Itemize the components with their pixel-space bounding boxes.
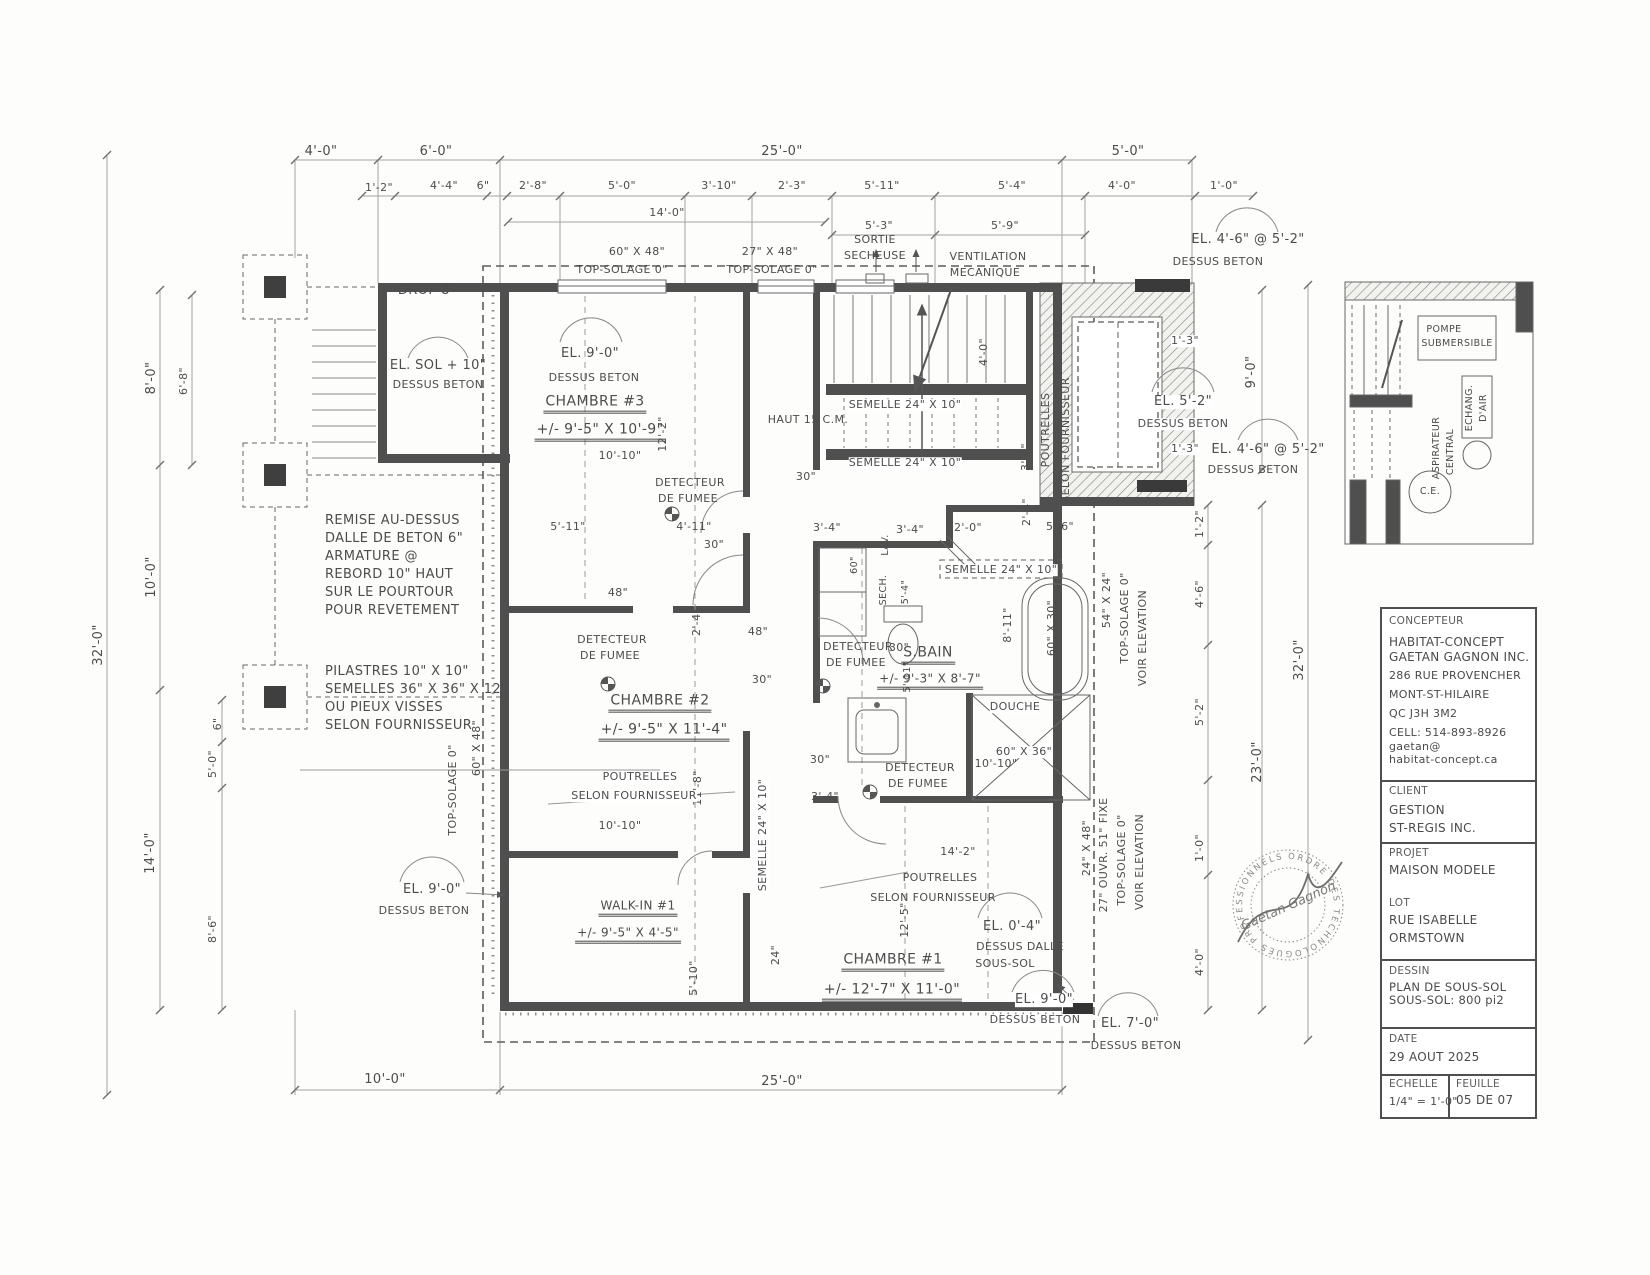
elevation-note: EL. 4'-6" @ 5'-2" [1191, 233, 1304, 247]
concepteur-line: GAETAN GAGNON INC. [1389, 650, 1529, 664]
concepteur-line: habitat-concept.ca [1389, 753, 1498, 766]
dimension: 2'-8" [519, 180, 547, 192]
exterior-stair [312, 330, 376, 458]
divider [1382, 842, 1535, 844]
dimension: 24" [770, 945, 782, 965]
elevation-note: EL. 9'-0" [561, 347, 619, 361]
dimension: 5'-11" [550, 521, 585, 533]
dimension: 3'-4" [811, 791, 839, 803]
air-exchanger-label: ECHANG. [1465, 385, 1475, 432]
elevation-note: DESSUS BETON [1091, 1040, 1182, 1052]
joist-note: SELON FOURNISSEUR [870, 892, 996, 904]
dimension: 2'-4" [1021, 498, 1033, 526]
window-size-note: 60" X 48" [609, 246, 665, 258]
ventilation-note: MECANIQUE [950, 267, 1020, 279]
dimension: 25'-0" [761, 145, 802, 159]
dimension: 5'-10" [688, 960, 700, 995]
stair-note: HAUT 15 C.M. [768, 414, 849, 426]
dimension: 4'-4" [430, 180, 458, 192]
dimension: 14'-2" [940, 846, 975, 858]
fixture-label: LAV. [881, 534, 891, 555]
elevation-note: DESSUS BETON [1208, 464, 1299, 476]
dimension: 30" [796, 471, 816, 483]
window-bar [1135, 279, 1190, 292]
concepteur-line: MONT-ST-HILAIRE [1389, 688, 1489, 701]
dimension: 8'-6" [207, 915, 219, 943]
elevation-note: EL. 7'-0" [1101, 1017, 1159, 1031]
dimension: 1'-3" [1171, 443, 1199, 455]
toilet-tank [884, 606, 922, 622]
remise-note: DALLE DE BETON 6" [325, 532, 463, 546]
fixture-label: DOUCHE [990, 701, 1040, 713]
dimension: 8'-11" [1002, 607, 1014, 642]
smoke-detector-note: DE FUMEE [580, 650, 640, 662]
central-vacuum-label: CENTRAL [1446, 429, 1456, 475]
smoke-detector-note: DETECTEUR [655, 477, 725, 489]
elevation-note: DESSUS BETON [379, 905, 470, 917]
dimension: 10'-0" [364, 1073, 405, 1087]
drop-note: DROP 8" [398, 284, 456, 298]
concepteur-line: 286 RUE PROVENCHER [1389, 669, 1521, 682]
dimension: 14'-0" [649, 207, 684, 219]
lot-line: RUE ISABELLE [1389, 913, 1477, 927]
dimension: 3'-4" [813, 522, 841, 534]
divider [1382, 959, 1535, 961]
fixture-size: 60" X 36" [996, 746, 1052, 758]
joist-note: POUTRELLES [903, 872, 978, 884]
dimension: 10'-10" [599, 450, 642, 462]
dimension: 5'-0" [608, 180, 636, 192]
window-size-note: 60" X 48" [471, 720, 483, 776]
dimension: 5'-4" [901, 580, 911, 605]
dimension: 2'-4" [691, 608, 703, 636]
room-name: CHAMBRE #2 [608, 694, 711, 713]
room-name: CHAMBRE #3 [543, 395, 646, 414]
dimension: 5'-3" [865, 220, 893, 232]
remise-note: REBORD 10" HAUT [325, 568, 453, 582]
joist-note: POUTRELLES [1040, 393, 1052, 468]
lot-line: ORMSTOWN [1389, 931, 1465, 945]
dimension: 5'-2" [1194, 698, 1206, 726]
dimension: 10'-10" [975, 758, 1018, 770]
dimension: 12'-2" [657, 416, 669, 451]
dimension: 4'-0" [1108, 180, 1136, 192]
room-size: +/- 9'-5" X 4'-5" [575, 927, 681, 944]
dimension: 32'-0" [1293, 639, 1307, 680]
window-size-note: 27" X 48" [742, 246, 798, 258]
pump-label: SUBMERSIBLE [1421, 339, 1492, 349]
remise-note: ARMATURE @ [325, 550, 418, 564]
smoke-detector-note: DE FUMEE [888, 778, 948, 790]
remise-note: POUR REVETEMENT [325, 604, 459, 618]
top-solage-note: TOP-SOLAGE 0" [1119, 572, 1131, 663]
dimension: 1'-0" [1210, 180, 1238, 192]
title-block: CONCEPTEUR HABITAT-CONCEPT GAETAN GAGNON… [1380, 607, 1537, 1119]
dimension: 10'-10" [599, 820, 642, 832]
smoke-detector-note: DE FUMEE [658, 493, 718, 505]
fixture-size: 60" X 30" [1046, 600, 1058, 656]
concepteur-line: gaetan@ [1389, 740, 1441, 753]
date-label: DATE [1389, 1033, 1418, 1045]
smoke-detector-note: DETECTEUR [823, 641, 893, 653]
dimension: 12'-5" [899, 902, 911, 937]
client-label: CLIENT [1389, 785, 1428, 797]
water-heater-label: C.E. [1420, 487, 1440, 497]
window-note: 27" OUVR. 51" FIXE [1098, 798, 1110, 913]
joist-note: SELON FOURNISSEUR [571, 790, 697, 802]
feuille-label: FEUILLE [1456, 1078, 1500, 1090]
dimension: 5'-0" [207, 750, 219, 778]
room-name: WALK-IN #1 [598, 900, 677, 917]
dimension: 60" [850, 556, 860, 574]
divider [1382, 1074, 1535, 1076]
concepteur-line: HABITAT-CONCEPT [1389, 635, 1504, 649]
dimension: 48" [608, 587, 628, 599]
pump-detail-plan [1345, 282, 1533, 544]
smoke-detector-note: DE FUMEE [826, 657, 886, 669]
semelle-note: SEMELLE 24" X 10" [849, 399, 962, 411]
pilastres-note: OU PIEUX VISSES [325, 701, 443, 715]
projet-value: MAISON MODELE [1389, 863, 1496, 877]
dimension: 1'-2" [1194, 510, 1206, 538]
dryer-exit-note: SECHEUSE [844, 250, 906, 262]
room-name: CHAMBRE #1 [841, 953, 944, 972]
dimension: 9'-0" [1245, 356, 1259, 389]
dimension: 3'-6" [1020, 443, 1032, 471]
dimension: 30" [810, 754, 830, 766]
professional-stamp: ORDRE DES TECHNOLOGUES PROFESSIONNELS Ga… [1233, 850, 1343, 960]
pilastres-note: SELON FOURNISSEUR [325, 719, 472, 733]
elevation-note: EL. 0'-4" [983, 920, 1041, 934]
air-exchanger-label: D'AIR [1479, 394, 1489, 422]
central-vacuum [1463, 441, 1491, 469]
elevation-note: EL. 9'-0" [1015, 993, 1073, 1007]
dimension: 30" [889, 642, 909, 654]
client-line: ST-REGIS INC. [1389, 821, 1476, 835]
dimension: 5'-0" [1112, 145, 1145, 159]
semelle-note: SEMELLE 24" X 10" [945, 564, 1058, 576]
room-size: +/- 9'-3" X 8'-7" [877, 673, 983, 690]
elevation-note: DESSUS BETON [990, 1014, 1081, 1026]
elevation-note: DESSUS DALLE [976, 941, 1064, 953]
dimension: 2'-3" [778, 180, 806, 192]
window-size-note: 54" X 24" [1101, 572, 1113, 628]
floor-plan-sheet: ORDRE DES TECHNOLOGUES PROFESSIONNELS Ga… [0, 0, 1650, 1275]
elevation-note: EL. 9'-0" [403, 883, 461, 897]
stair [834, 287, 1005, 455]
pilastres-note: SEMELLES 36" X 36" X 12" [325, 683, 508, 697]
concepteur-line: CELL: 514-893-8926 [1389, 726, 1506, 739]
dessin-line: PLAN DE SOUS-SOL [1389, 980, 1506, 994]
elevation-note: SOUS-SOL [975, 958, 1035, 970]
dimension: 5'-11" [903, 662, 913, 693]
elevation-note: DESSUS BETON [393, 379, 484, 391]
elevation-note: EL. SOL + 10" [390, 359, 486, 373]
dimension: 2'-0" [954, 522, 982, 534]
dimension: 6" [477, 180, 490, 192]
pilastres-note: PILASTRES 10" X 10" [325, 665, 469, 679]
divider [1382, 1027, 1535, 1029]
dimension: 48" [748, 626, 768, 638]
dimension: 3'-4" [896, 524, 924, 536]
joist-note: SELON FOURNISSEUR [1060, 377, 1072, 503]
window-bar [1137, 480, 1187, 492]
dimension: 3'-10" [701, 180, 736, 192]
dimension: 5'-4" [998, 180, 1026, 192]
semelle-note: SEMELLE 24" X 10" [849, 457, 962, 469]
dimension: 8'-0" [145, 362, 159, 395]
elevation-note: DESSUS BETON [1173, 256, 1264, 268]
voir-elevation-note: VOIR ELEVATION [1134, 814, 1146, 910]
echelle-value: 1/4" = 1'-0" [1389, 1095, 1458, 1108]
room-size: +/- 9'-5" X 11'-4" [599, 723, 730, 742]
smoke-detector-note: DETECTEUR [885, 762, 955, 774]
top-solage-note: TOP-SOLAGE 0" [726, 264, 817, 276]
dimension: 30" [752, 674, 772, 686]
dimension: 4'-0" [305, 145, 338, 159]
elevation-note: EL. 4'-6" @ 5'-2" [1211, 443, 1324, 457]
stamp-signature: Gaetan Gagnon [1239, 879, 1338, 934]
dimension: 6" [212, 718, 224, 731]
date-value: 29 AOUT 2025 [1389, 1050, 1480, 1064]
concepteur-label: CONCEPTEUR [1389, 615, 1464, 627]
top-solage-note: TOP-SOLAGE 0" [576, 264, 667, 276]
concepteur-line: QC J3H 3M2 [1389, 707, 1457, 720]
dimension: 14'-0" [144, 832, 158, 873]
dimension: 25'-0" [761, 1075, 802, 1089]
dessin-line: SOUS-SOL: 800 pi2 [1389, 993, 1504, 1007]
echelle-label: ECHELLE [1389, 1078, 1438, 1090]
window-size-note: 24" X 48" [1081, 820, 1093, 876]
feuille-value: 05 DE 07 [1456, 1093, 1513, 1107]
remise-note: REMISE AU-DESSUS [325, 514, 460, 528]
dessin-label: DESSIN [1389, 965, 1430, 977]
top-solage-note: TOP-SOLAGE 0" [1116, 814, 1128, 905]
lot-label: LOT [1389, 897, 1410, 909]
dimension: 30" [704, 539, 724, 551]
central-vacuum-label: ASPIRATEUR [1432, 417, 1442, 479]
projet-label: PROJET [1389, 847, 1429, 859]
dimension: 4'-0" [978, 338, 990, 366]
dimension: 4'-0" [1194, 948, 1206, 976]
dimension: 6'-8" [178, 367, 190, 395]
dimension: 1'-0" [1194, 834, 1206, 862]
remise-note: SUR LE POURTOUR [325, 586, 454, 600]
dimension: 32'-0" [92, 624, 106, 665]
divider [1382, 780, 1535, 782]
dimension: 4'-6" [1194, 580, 1206, 608]
semelle-note: SEMELLE 24" X 10" [757, 779, 769, 892]
voir-elevation-note: VOIR ELEVATION [1137, 590, 1149, 686]
ventilation-note: VENTILATION [950, 251, 1027, 263]
dryer-exit-note: SORTIE [854, 234, 896, 246]
joist-note: POUTRELLES [603, 771, 678, 783]
dimension: 1'-2" [365, 182, 393, 194]
dimension: 5'-9" [991, 220, 1019, 232]
room-size: +/- 9'-5" X 10'-9" [535, 423, 666, 442]
elevation-note: DESSUS BETON [1138, 418, 1229, 430]
dimension: 5'-11" [864, 180, 899, 192]
elevation-note: EL. 5'-2" [1154, 395, 1212, 409]
client-line: GESTION [1389, 803, 1445, 817]
dimension: 23'-0" [1251, 741, 1265, 782]
dimension: 1'-3" [1171, 335, 1199, 347]
fixture-label: SECH. [879, 575, 889, 606]
dimension: 5'-6" [1046, 521, 1074, 533]
elevation-note: DESSUS BETON [549, 372, 640, 384]
dimension: 10'-0" [145, 556, 159, 597]
room-size: +/- 12'-7" X 11'-0" [822, 983, 962, 1002]
top-solage-note: TOP-SOLAGE 0" [447, 744, 459, 835]
piers [243, 255, 500, 729]
smoke-detector-note: DETECTEUR [577, 634, 647, 646]
dimension: 4'-11" [676, 521, 711, 533]
pump-label: POMPE [1426, 325, 1461, 335]
dimension: 6'-0" [420, 145, 453, 159]
